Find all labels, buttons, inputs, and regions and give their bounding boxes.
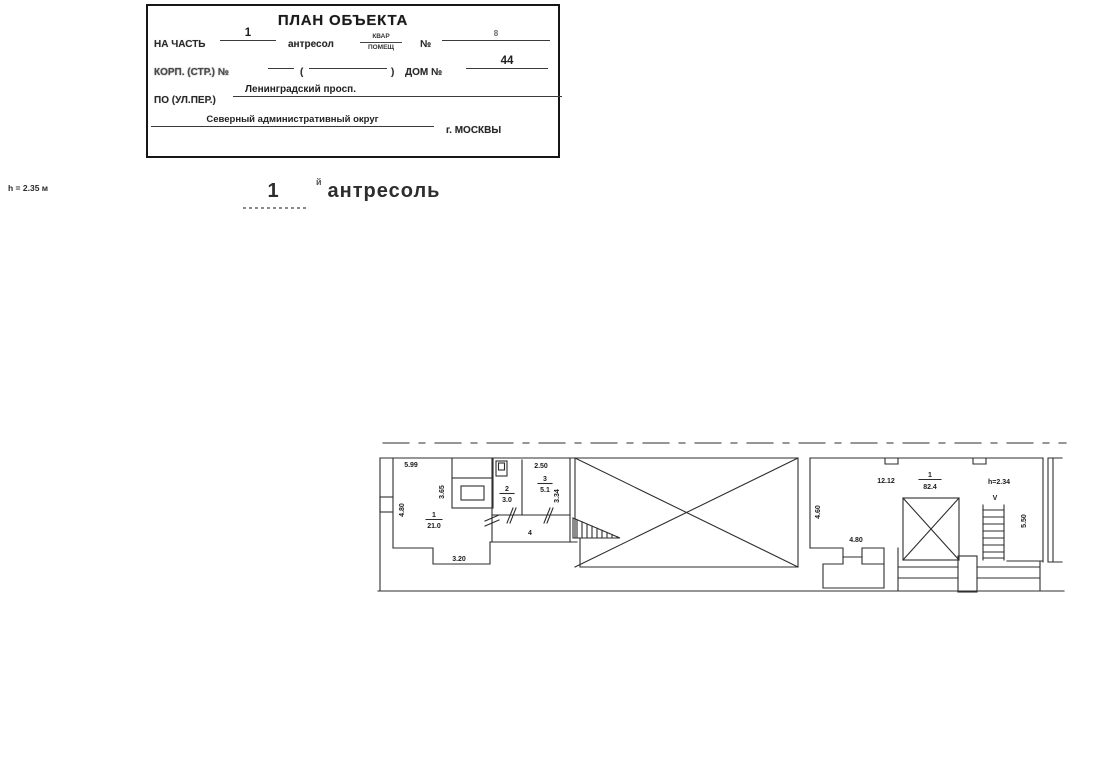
room2-area: 3.0 <box>502 497 512 504</box>
room1-bottom-wall <box>393 542 577 564</box>
right-height-note: h=2.34 <box>988 479 1010 486</box>
room3-dim-right: 3.34 <box>554 489 561 503</box>
corridor-number: 4 <box>528 530 532 537</box>
right-dim-right: 5.50 <box>1021 514 1028 528</box>
room3-number: 3 <box>543 476 547 483</box>
top-wall-niches <box>885 458 986 464</box>
room1-number: 1 <box>432 512 436 519</box>
door-opening-marks <box>485 508 553 526</box>
stair-mark: V <box>993 495 998 502</box>
shaft-inner <box>461 486 484 500</box>
balcony-neck <box>843 557 862 564</box>
shaft-outer <box>452 478 493 508</box>
right-room1-area: 82.4 <box>923 484 937 491</box>
room2-number: 2 <box>505 486 509 493</box>
balcony-outline <box>823 548 898 591</box>
ladder-rungs <box>983 510 1004 558</box>
right-unit: 12.12 1 82.4 h=2.34 V 4.60 4.80 5.50 <box>810 458 1062 592</box>
room1-dim-left: 4.80 <box>399 503 406 517</box>
left-unit: 5.99 4.80 3.65 1 21.0 3.20 2 3.0 2.50 3 … <box>380 458 798 567</box>
right-bracket-wall <box>1048 458 1062 562</box>
stair-landing <box>958 556 977 592</box>
room3-area: 5.1 <box>540 487 550 494</box>
bottom-wall-left <box>810 548 884 557</box>
right-unit-right-wall <box>1007 458 1043 562</box>
void-area-cross <box>575 458 798 567</box>
room3-dim-top: 2.50 <box>534 463 548 470</box>
room1-dim-mid: 3.65 <box>439 485 446 499</box>
room1-dim-top: 5.99 <box>404 462 418 469</box>
room1-dim-bottom: 3.20 <box>452 556 466 563</box>
room1-window-niche <box>380 497 393 512</box>
room1-area: 21.0 <box>427 523 441 530</box>
floor-plan: 5.99 4.80 3.65 1 21.0 3.20 2 3.0 2.50 3 … <box>0 0 1103 768</box>
sink-bowl-icon <box>499 463 505 470</box>
right-dim-left: 4.60 <box>815 505 822 519</box>
stair-flight-left <box>898 567 958 578</box>
elevator-shaft-cross <box>903 498 959 560</box>
stair-flight-right <box>977 561 1040 591</box>
shaft-side-walls <box>452 458 493 478</box>
right-room1-number: 1 <box>928 472 932 479</box>
right-dim-inner: 4.80 <box>849 537 863 544</box>
right-dim-top: 12.12 <box>877 478 895 485</box>
